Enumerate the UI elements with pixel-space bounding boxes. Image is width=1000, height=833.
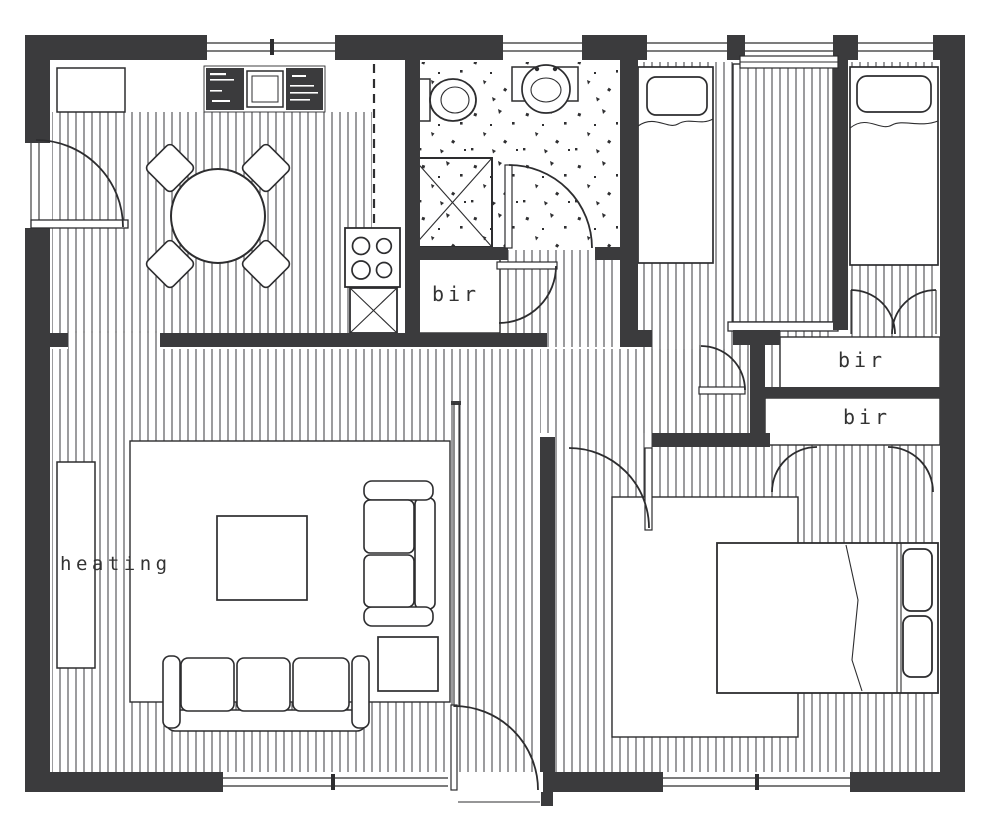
- kitchen-bench: [57, 68, 125, 112]
- sofa-cushion: [364, 555, 414, 607]
- kitchen-appliance-unit: [204, 66, 325, 112]
- sofa-back: [415, 498, 435, 609]
- side-table: [378, 637, 438, 691]
- wall-bir-divider: [765, 387, 940, 398]
- sofa-cushion: [181, 658, 234, 711]
- window-bedroom2-a: [647, 36, 727, 59]
- striped-bed-foot-rail: [728, 322, 838, 331]
- wall-master-west: [540, 437, 555, 792]
- sofa-armrest: [364, 481, 433, 500]
- floor-plan-page: bir bir bir heating: [0, 0, 1000, 833]
- sofa-cushion: [237, 658, 290, 711]
- label-bir-bedroom3: bir: [838, 348, 886, 372]
- bedroom-3: [850, 67, 938, 265]
- door-leaf: [505, 165, 512, 248]
- kitchen-cabinet-x: [350, 288, 397, 333]
- sofa-back: [166, 710, 366, 731]
- wall-bedroom2-master: [652, 433, 770, 447]
- sofa-armrest: [364, 607, 433, 626]
- wall-kitchen-hall: [160, 333, 547, 347]
- window-bathroom: [503, 36, 582, 59]
- window-bedroom2-b: [740, 36, 838, 68]
- coffee-table: [217, 516, 307, 600]
- wall-bathroom-bedroom2: [620, 60, 638, 347]
- wall-bathroom-south: [405, 247, 508, 260]
- wall-kitchen-bathroom: [405, 60, 420, 333]
- window-bedroom3: [858, 36, 933, 59]
- sofa-three-seat: [163, 656, 369, 731]
- label-bir-hall: bir: [432, 282, 480, 306]
- sofa-cushion: [364, 500, 414, 553]
- pillow: [903, 549, 932, 611]
- pillow: [647, 77, 707, 115]
- sofa-armrest: [163, 656, 180, 728]
- sofa-two-seat: [364, 481, 435, 626]
- window-master: [663, 772, 850, 792]
- window-kitchen: [207, 36, 335, 59]
- door-leaf: [451, 705, 457, 790]
- label-bir-master: bir: [843, 405, 891, 429]
- cooktop: [345, 228, 400, 287]
- door-leaf: [31, 220, 128, 228]
- sofa-cushion: [293, 658, 349, 711]
- door-leaf: [497, 262, 557, 269]
- appliance-right: [286, 68, 323, 110]
- door-leaf: [699, 387, 745, 394]
- wall-bedroom2-bedroom3: [833, 60, 848, 330]
- kitchen-passage-hatch: [68, 331, 160, 349]
- dining-table: [171, 169, 265, 263]
- toilet: [419, 79, 476, 121]
- pillow: [857, 76, 931, 112]
- pillow: [903, 616, 932, 677]
- window-living: [223, 772, 448, 792]
- floor-plan-svg: bir bir bir heating: [0, 0, 1000, 833]
- label-heating: heating: [60, 553, 172, 575]
- sofa-armrest: [352, 656, 369, 728]
